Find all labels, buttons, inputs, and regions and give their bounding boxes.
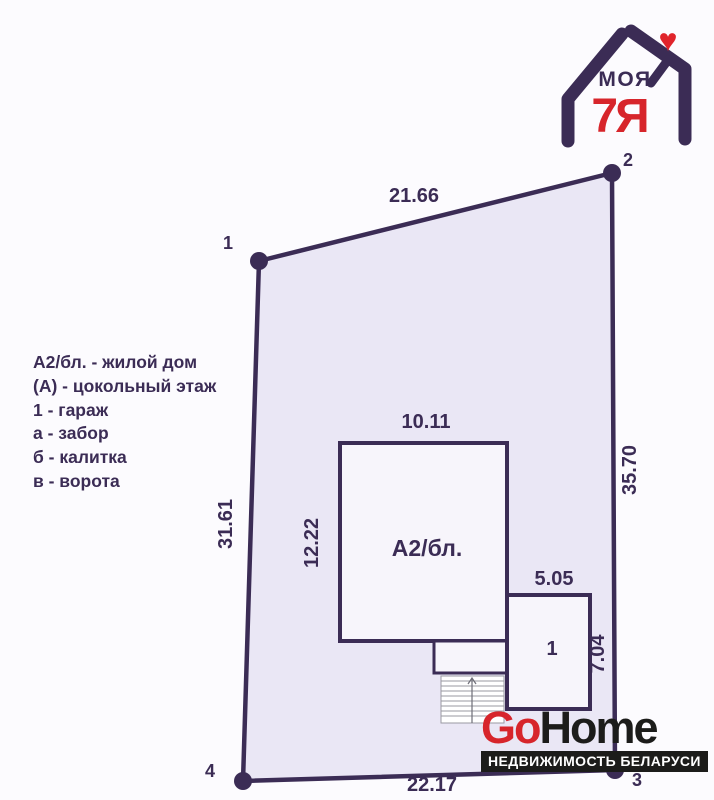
corner-dot-2	[603, 164, 621, 182]
corner-label-4: 4	[205, 761, 215, 781]
garage-width-label: 5.05	[535, 568, 574, 590]
gohome-home-text: Home	[540, 702, 657, 753]
dim-label-top: 21.66	[389, 185, 439, 207]
brand-moya-text: МОЯ	[598, 68, 651, 91]
legend-line-basement: (А) - цокольный этаж	[33, 375, 216, 399]
brand-7ya-text: 7Я	[591, 90, 647, 143]
legend-line-wicket: б - калитка	[33, 446, 216, 470]
corner-label-1: 1	[223, 233, 233, 253]
legend-line-gate: в - ворота	[33, 470, 216, 494]
legend-line-fence: а - забор	[33, 422, 216, 446]
gohome-wordmark: GoHome	[481, 706, 708, 750]
garage-label: 1	[546, 638, 557, 660]
gohome-logo: GoHome НЕДВИЖИМОСТЬ БЕЛАРУСИ	[481, 706, 708, 772]
dim-label-bottom: 22.17	[407, 774, 457, 796]
logo-thumb-icon	[651, 60, 668, 83]
corner-dot-1	[250, 252, 268, 270]
house-depth-label: 12.22	[301, 518, 323, 568]
brand-logo: ♥ МОЯ 7Я	[568, 22, 685, 143]
site-plan-page: 1 2 3 4 21.66 35.70 31.61 22.17 10.11 12…	[0, 0, 714, 800]
legend: А2/бл. - жилой дом (А) - цокольный этаж …	[33, 351, 216, 494]
gohome-tagline: НЕДВИЖИМОСТЬ БЕЛАРУСИ	[481, 751, 708, 772]
corner-dot-4	[234, 772, 252, 790]
legend-line-house: А2/бл. - жилой дом	[33, 351, 216, 375]
porch-outline	[434, 641, 507, 673]
corner-label-2: 2	[623, 150, 633, 170]
gohome-go-text: Go	[481, 702, 540, 753]
house-label: А2/бл.	[392, 535, 462, 561]
corner-label-3: 3	[632, 770, 642, 790]
heart-icon: ♥	[659, 22, 678, 58]
legend-line-garage: 1 - гараж	[33, 399, 216, 423]
house-width-label: 10.11	[402, 411, 451, 433]
dim-label-left: 31.61	[215, 499, 237, 549]
garage-depth-label: 7.04	[587, 634, 609, 674]
dim-label-right: 35.70	[619, 445, 641, 495]
